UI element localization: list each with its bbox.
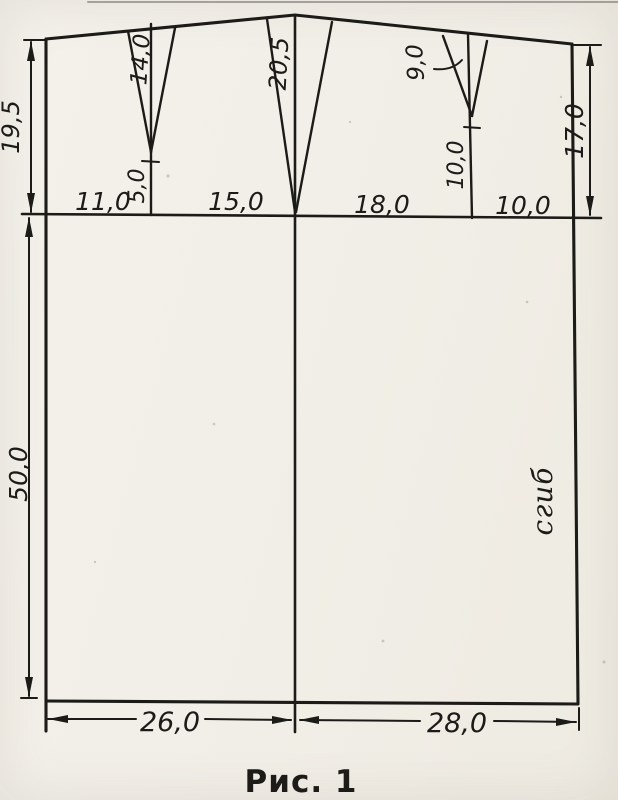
arrow-right-icon [556, 718, 576, 726]
hip-segment-label-18-0: 18,0 [354, 190, 410, 219]
speck [526, 301, 529, 304]
arrow-down-icon [586, 196, 594, 216]
arrow-up-icon [586, 46, 594, 66]
speck [560, 96, 562, 98]
hip-segment-label-11-0: 11,0 [75, 187, 131, 216]
arrow-left-icon [48, 715, 68, 723]
dim-label-50-0: 50,0 [4, 446, 33, 502]
dim-label-28-0: 28,0 [427, 708, 487, 739]
hip-segment-label-10-0: 10,0 [495, 191, 551, 220]
dim-hem-widths: 26,0 28,0 [48, 707, 579, 739]
arrow-down-icon [27, 193, 35, 213]
dart-front-right-leg [472, 41, 487, 116]
dart-front-point-tick [464, 127, 480, 128]
fold-label: сгиб [526, 467, 559, 536]
dim-label-26-0: 26,0 [140, 707, 200, 738]
skirt-pattern-diagram: 19,5 50,0 17,0 14,0 5,0 20,5 9,0 10,0 11… [0, 0, 618, 800]
arrow-left-icon [299, 716, 319, 724]
speck [382, 640, 385, 643]
dim-waist-to-hip-left: 19,5 [0, 40, 46, 213]
dim-waist-to-hip-right: 17,0 [560, 45, 601, 216]
dart-front-leader-line [434, 60, 462, 69]
speck [166, 174, 169, 177]
speck [603, 661, 606, 664]
speck [213, 423, 216, 426]
arrow-right-icon [272, 716, 292, 724]
dim-label-19-5: 19,5 [0, 100, 25, 153]
speck [349, 121, 351, 123]
dim-label-17-0: 17,0 [560, 103, 589, 159]
figure-caption: Рис. 1 [245, 764, 358, 800]
arrow-up-icon [27, 41, 35, 61]
dart-side-right-leg [296, 22, 332, 212]
dim-label-9-0: 9,0 [402, 43, 430, 81]
dim-hip-to-hem-left: 50,0 [4, 217, 37, 698]
arrow-down-icon [25, 677, 33, 697]
waistline [46, 15, 572, 44]
scanned-pattern-page: 19,5 50,0 17,0 14,0 5,0 20,5 9,0 10,0 11… [0, 0, 618, 800]
dim-label-14-0: 14,0 [126, 33, 156, 86]
dart-back-point-tick [142, 161, 159, 162]
hem-line [46, 701, 578, 704]
speck [94, 561, 96, 563]
dim-label-20-5: 20,5 [264, 36, 295, 91]
scan-specks [94, 96, 606, 664]
arrow-up-icon [25, 217, 33, 237]
hip-segment-label-15-0: 15,0 [208, 187, 264, 216]
dim-label-10-0-dart: 10,0 [444, 141, 469, 190]
